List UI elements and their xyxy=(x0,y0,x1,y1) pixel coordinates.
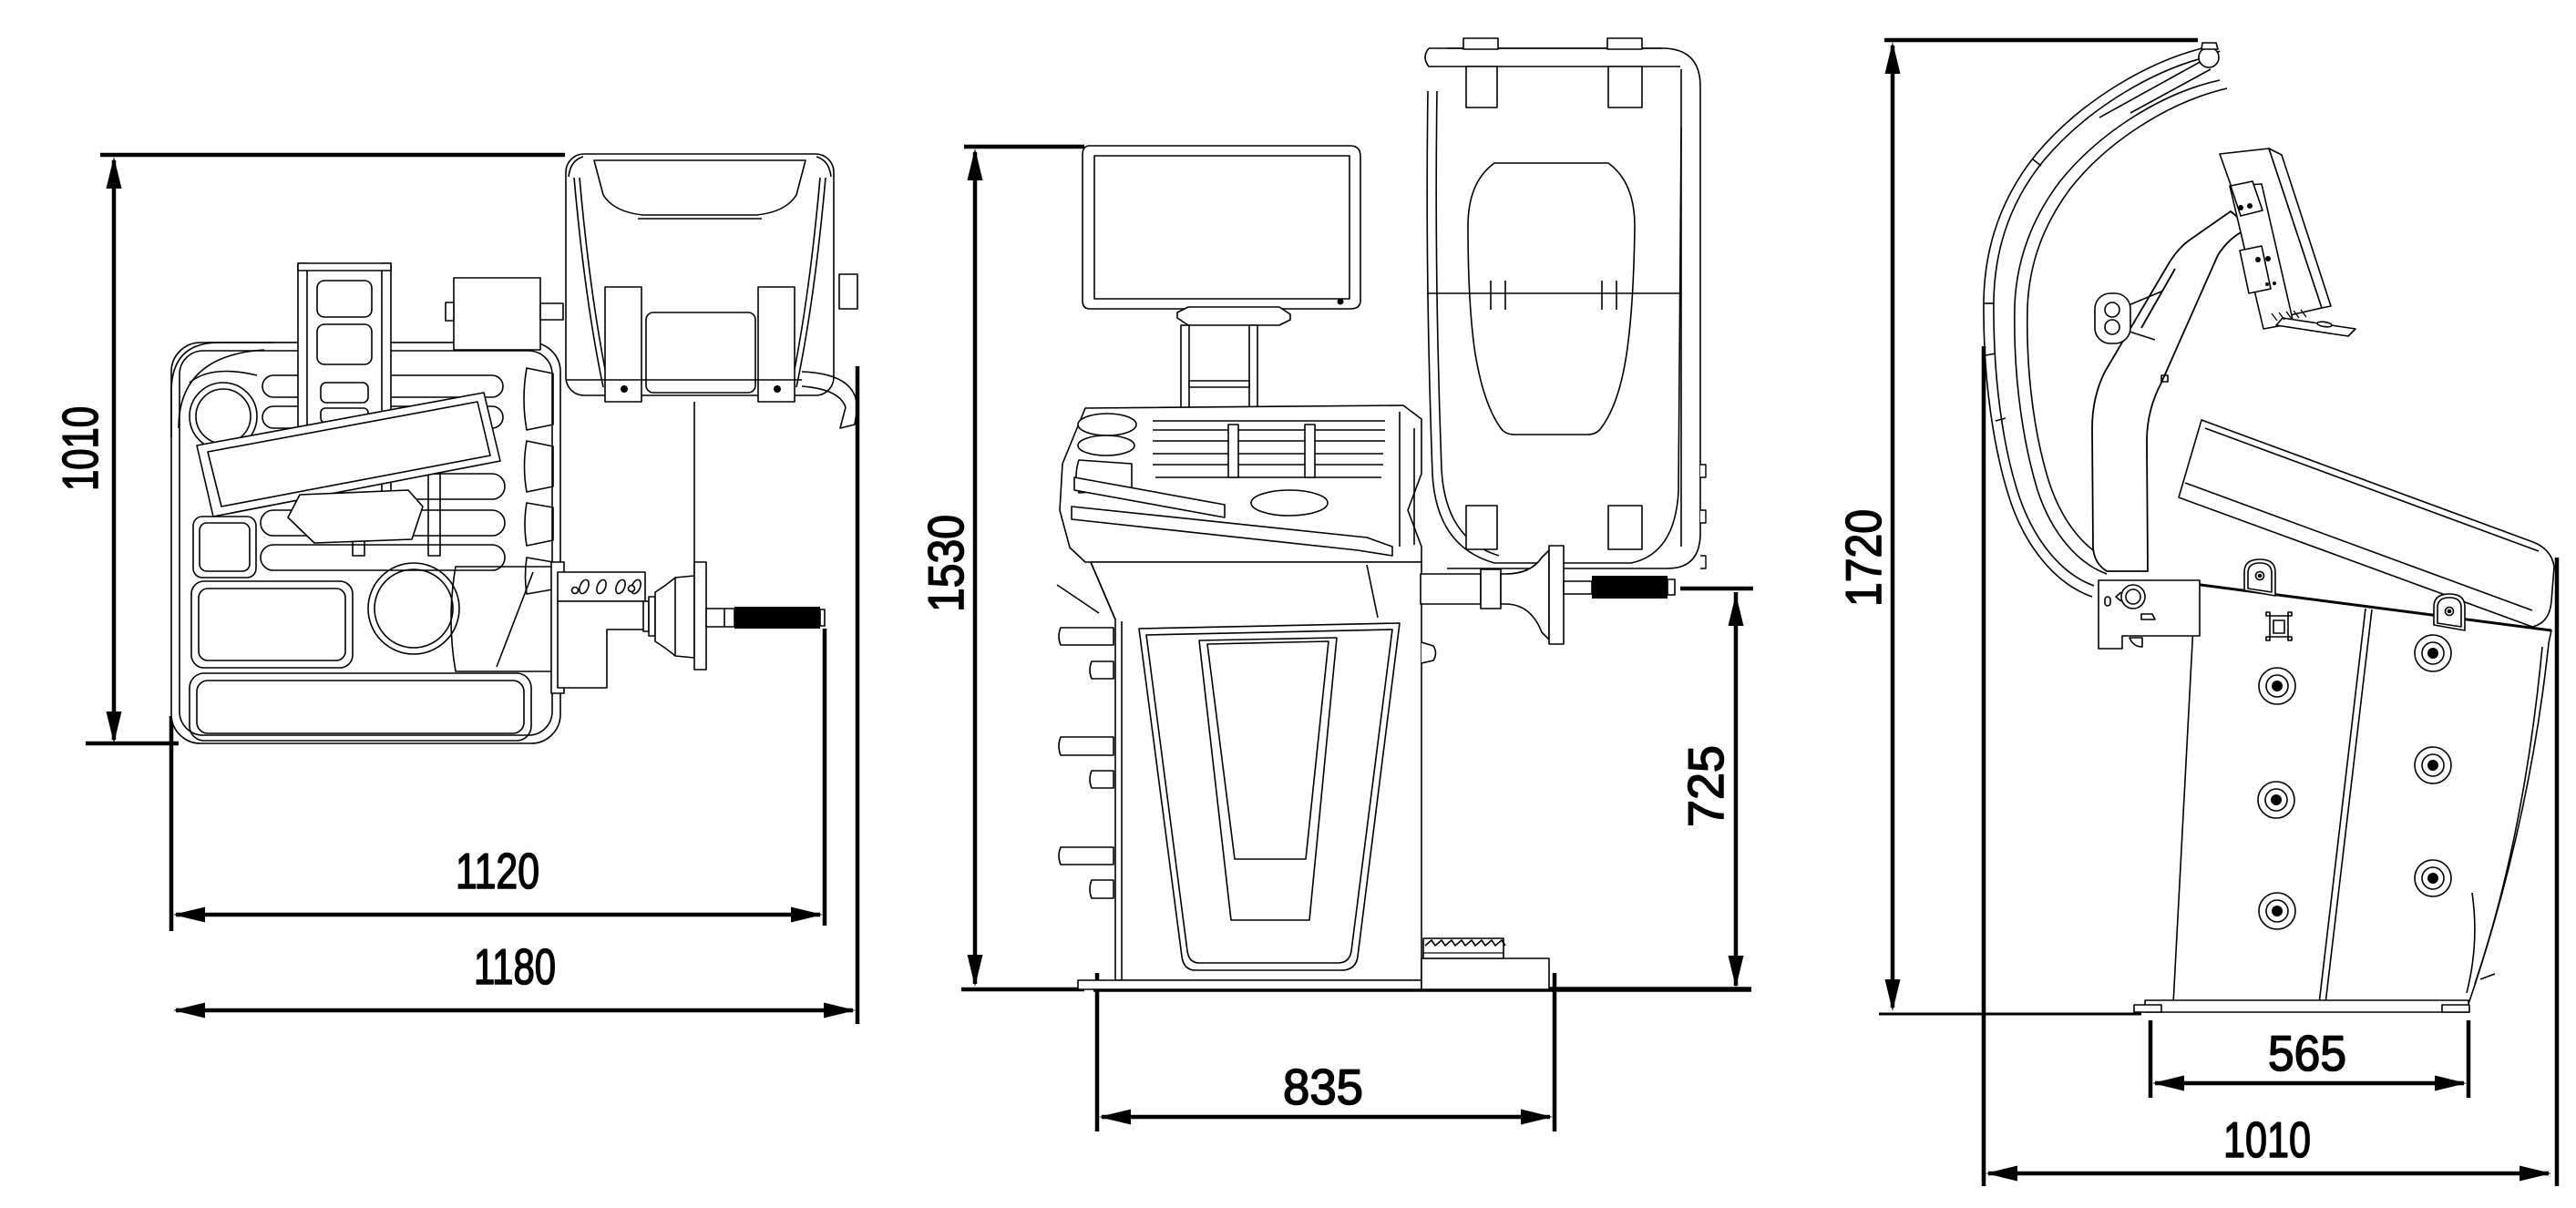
svg-text:1530: 1530 xyxy=(918,515,974,612)
svg-text:1010: 1010 xyxy=(2223,1111,2311,1168)
svg-text:1180: 1180 xyxy=(474,938,556,995)
svg-text:835: 835 xyxy=(1283,1059,1363,1115)
svg-text:1120: 1120 xyxy=(456,843,539,899)
svg-text:1720: 1720 xyxy=(1835,509,1892,607)
svg-text:565: 565 xyxy=(2268,1025,2346,1081)
svg-text:725: 725 xyxy=(1678,745,1734,827)
svg-text:1010: 1010 xyxy=(52,406,108,491)
